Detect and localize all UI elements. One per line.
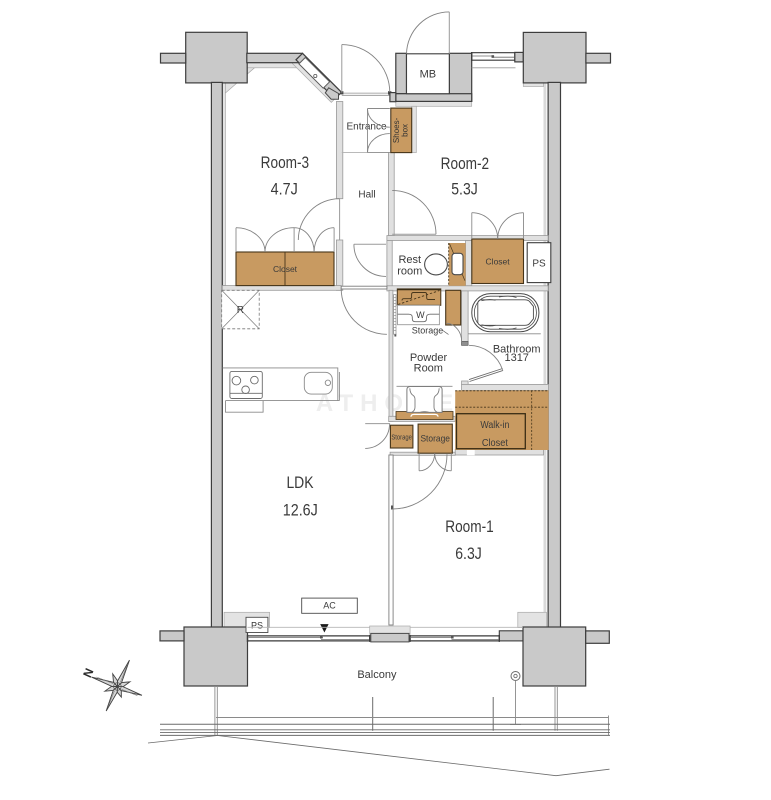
svg-text:Walk-in: Walk-in xyxy=(480,420,509,431)
svg-text:1317: 1317 xyxy=(504,352,528,364)
svg-text:Hall: Hall xyxy=(358,190,375,201)
svg-text:12.6J: 12.6J xyxy=(283,501,318,519)
svg-text:Closet: Closet xyxy=(486,257,511,267)
svg-text:Room: Room xyxy=(414,362,443,374)
svg-text:Room-3: Room-3 xyxy=(261,154,310,172)
svg-text:4.7J: 4.7J xyxy=(271,181,298,199)
svg-text:PS: PS xyxy=(251,620,263,630)
svg-text:PS: PS xyxy=(532,259,546,270)
svg-text:Closet: Closet xyxy=(273,264,298,274)
svg-text:Storage: Storage xyxy=(420,434,450,445)
svg-text:box: box xyxy=(401,124,410,137)
svg-text:MB: MB xyxy=(420,69,437,81)
svg-text:Entrance: Entrance xyxy=(346,122,386,133)
svg-text:Storage: Storage xyxy=(412,325,444,335)
svg-text:R: R xyxy=(237,305,244,316)
svg-text:5.3J: 5.3J xyxy=(451,181,478,199)
svg-text:Room-1: Room-1 xyxy=(445,518,494,536)
svg-text:6.3J: 6.3J xyxy=(455,545,482,563)
svg-text:Room-2: Room-2 xyxy=(441,155,490,173)
svg-text:LDK: LDK xyxy=(286,474,313,492)
svg-text:Balcony: Balcony xyxy=(357,669,397,681)
svg-text:Closet: Closet xyxy=(482,438,508,449)
svg-text:Storage: Storage xyxy=(391,434,412,441)
svg-text:room: room xyxy=(397,266,422,278)
svg-text:AC: AC xyxy=(323,601,336,611)
svg-text:W: W xyxy=(416,310,425,320)
svg-text:Rest: Rest xyxy=(398,254,421,266)
